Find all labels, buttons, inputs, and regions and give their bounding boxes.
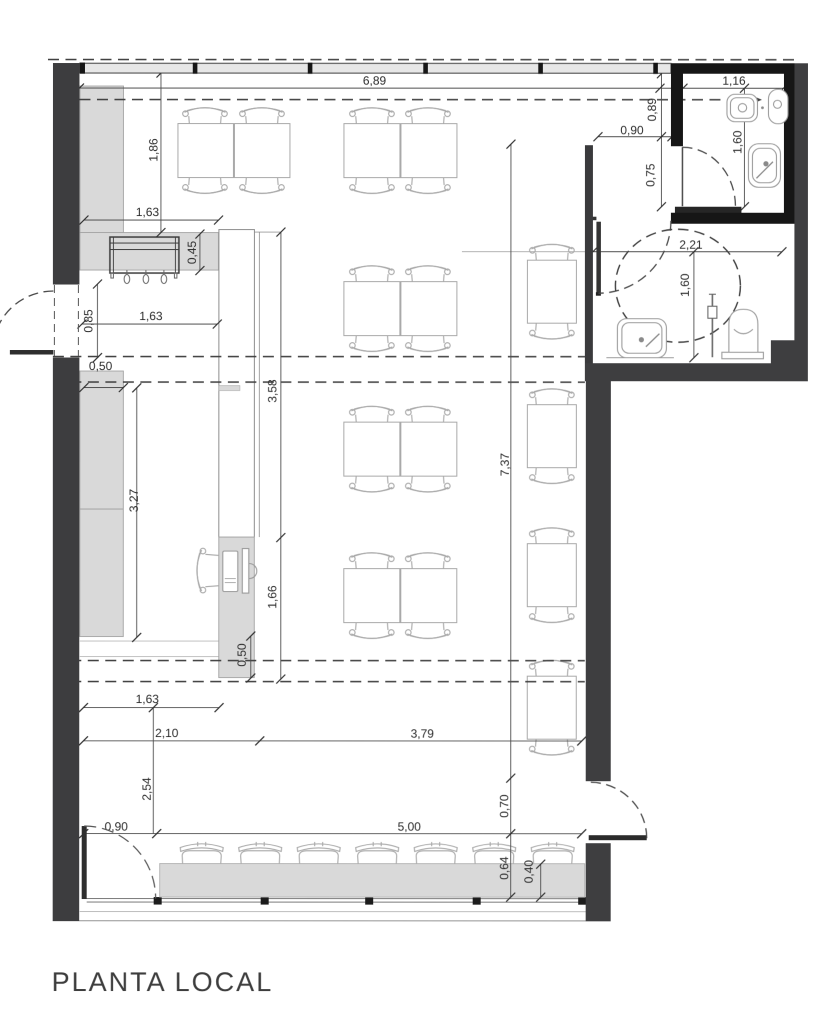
svg-text:1,66: 1,66 bbox=[265, 585, 279, 609]
svg-text:2,54: 2,54 bbox=[140, 777, 154, 801]
svg-text:1,63: 1,63 bbox=[136, 205, 160, 219]
svg-text:0,75: 0,75 bbox=[643, 163, 657, 187]
svg-text:2,10: 2,10 bbox=[155, 726, 179, 740]
svg-text:PLANTA LOCAL: PLANTA LOCAL bbox=[52, 967, 274, 997]
svg-text:2,21: 2,21 bbox=[679, 238, 703, 252]
svg-text:0,50: 0,50 bbox=[235, 643, 249, 667]
svg-text:0,70: 0,70 bbox=[497, 794, 511, 818]
svg-text:0,85: 0,85 bbox=[81, 309, 95, 333]
svg-text:0,64: 0,64 bbox=[497, 856, 511, 880]
svg-text:1,60: 1,60 bbox=[678, 273, 692, 297]
svg-text:0,90: 0,90 bbox=[105, 820, 129, 834]
svg-text:7,37: 7,37 bbox=[498, 453, 512, 477]
svg-text:5,00: 5,00 bbox=[398, 820, 422, 834]
svg-text:3,58: 3,58 bbox=[265, 379, 279, 403]
svg-text:1,63: 1,63 bbox=[136, 692, 160, 706]
svg-text:0,90: 0,90 bbox=[620, 123, 644, 137]
svg-text:0,89: 0,89 bbox=[645, 98, 659, 122]
svg-text:0,40: 0,40 bbox=[522, 860, 536, 884]
svg-text:3,79: 3,79 bbox=[411, 727, 435, 741]
svg-text:0,50: 0,50 bbox=[89, 359, 113, 373]
svg-text:0,45: 0,45 bbox=[185, 241, 199, 265]
svg-text:1,86: 1,86 bbox=[146, 138, 160, 162]
svg-text:1,63: 1,63 bbox=[139, 309, 163, 323]
svg-text:3,27: 3,27 bbox=[127, 489, 141, 513]
svg-text:1,16: 1,16 bbox=[722, 74, 746, 88]
svg-text:1,60: 1,60 bbox=[730, 130, 744, 154]
svg-text:6,89: 6,89 bbox=[363, 74, 387, 88]
